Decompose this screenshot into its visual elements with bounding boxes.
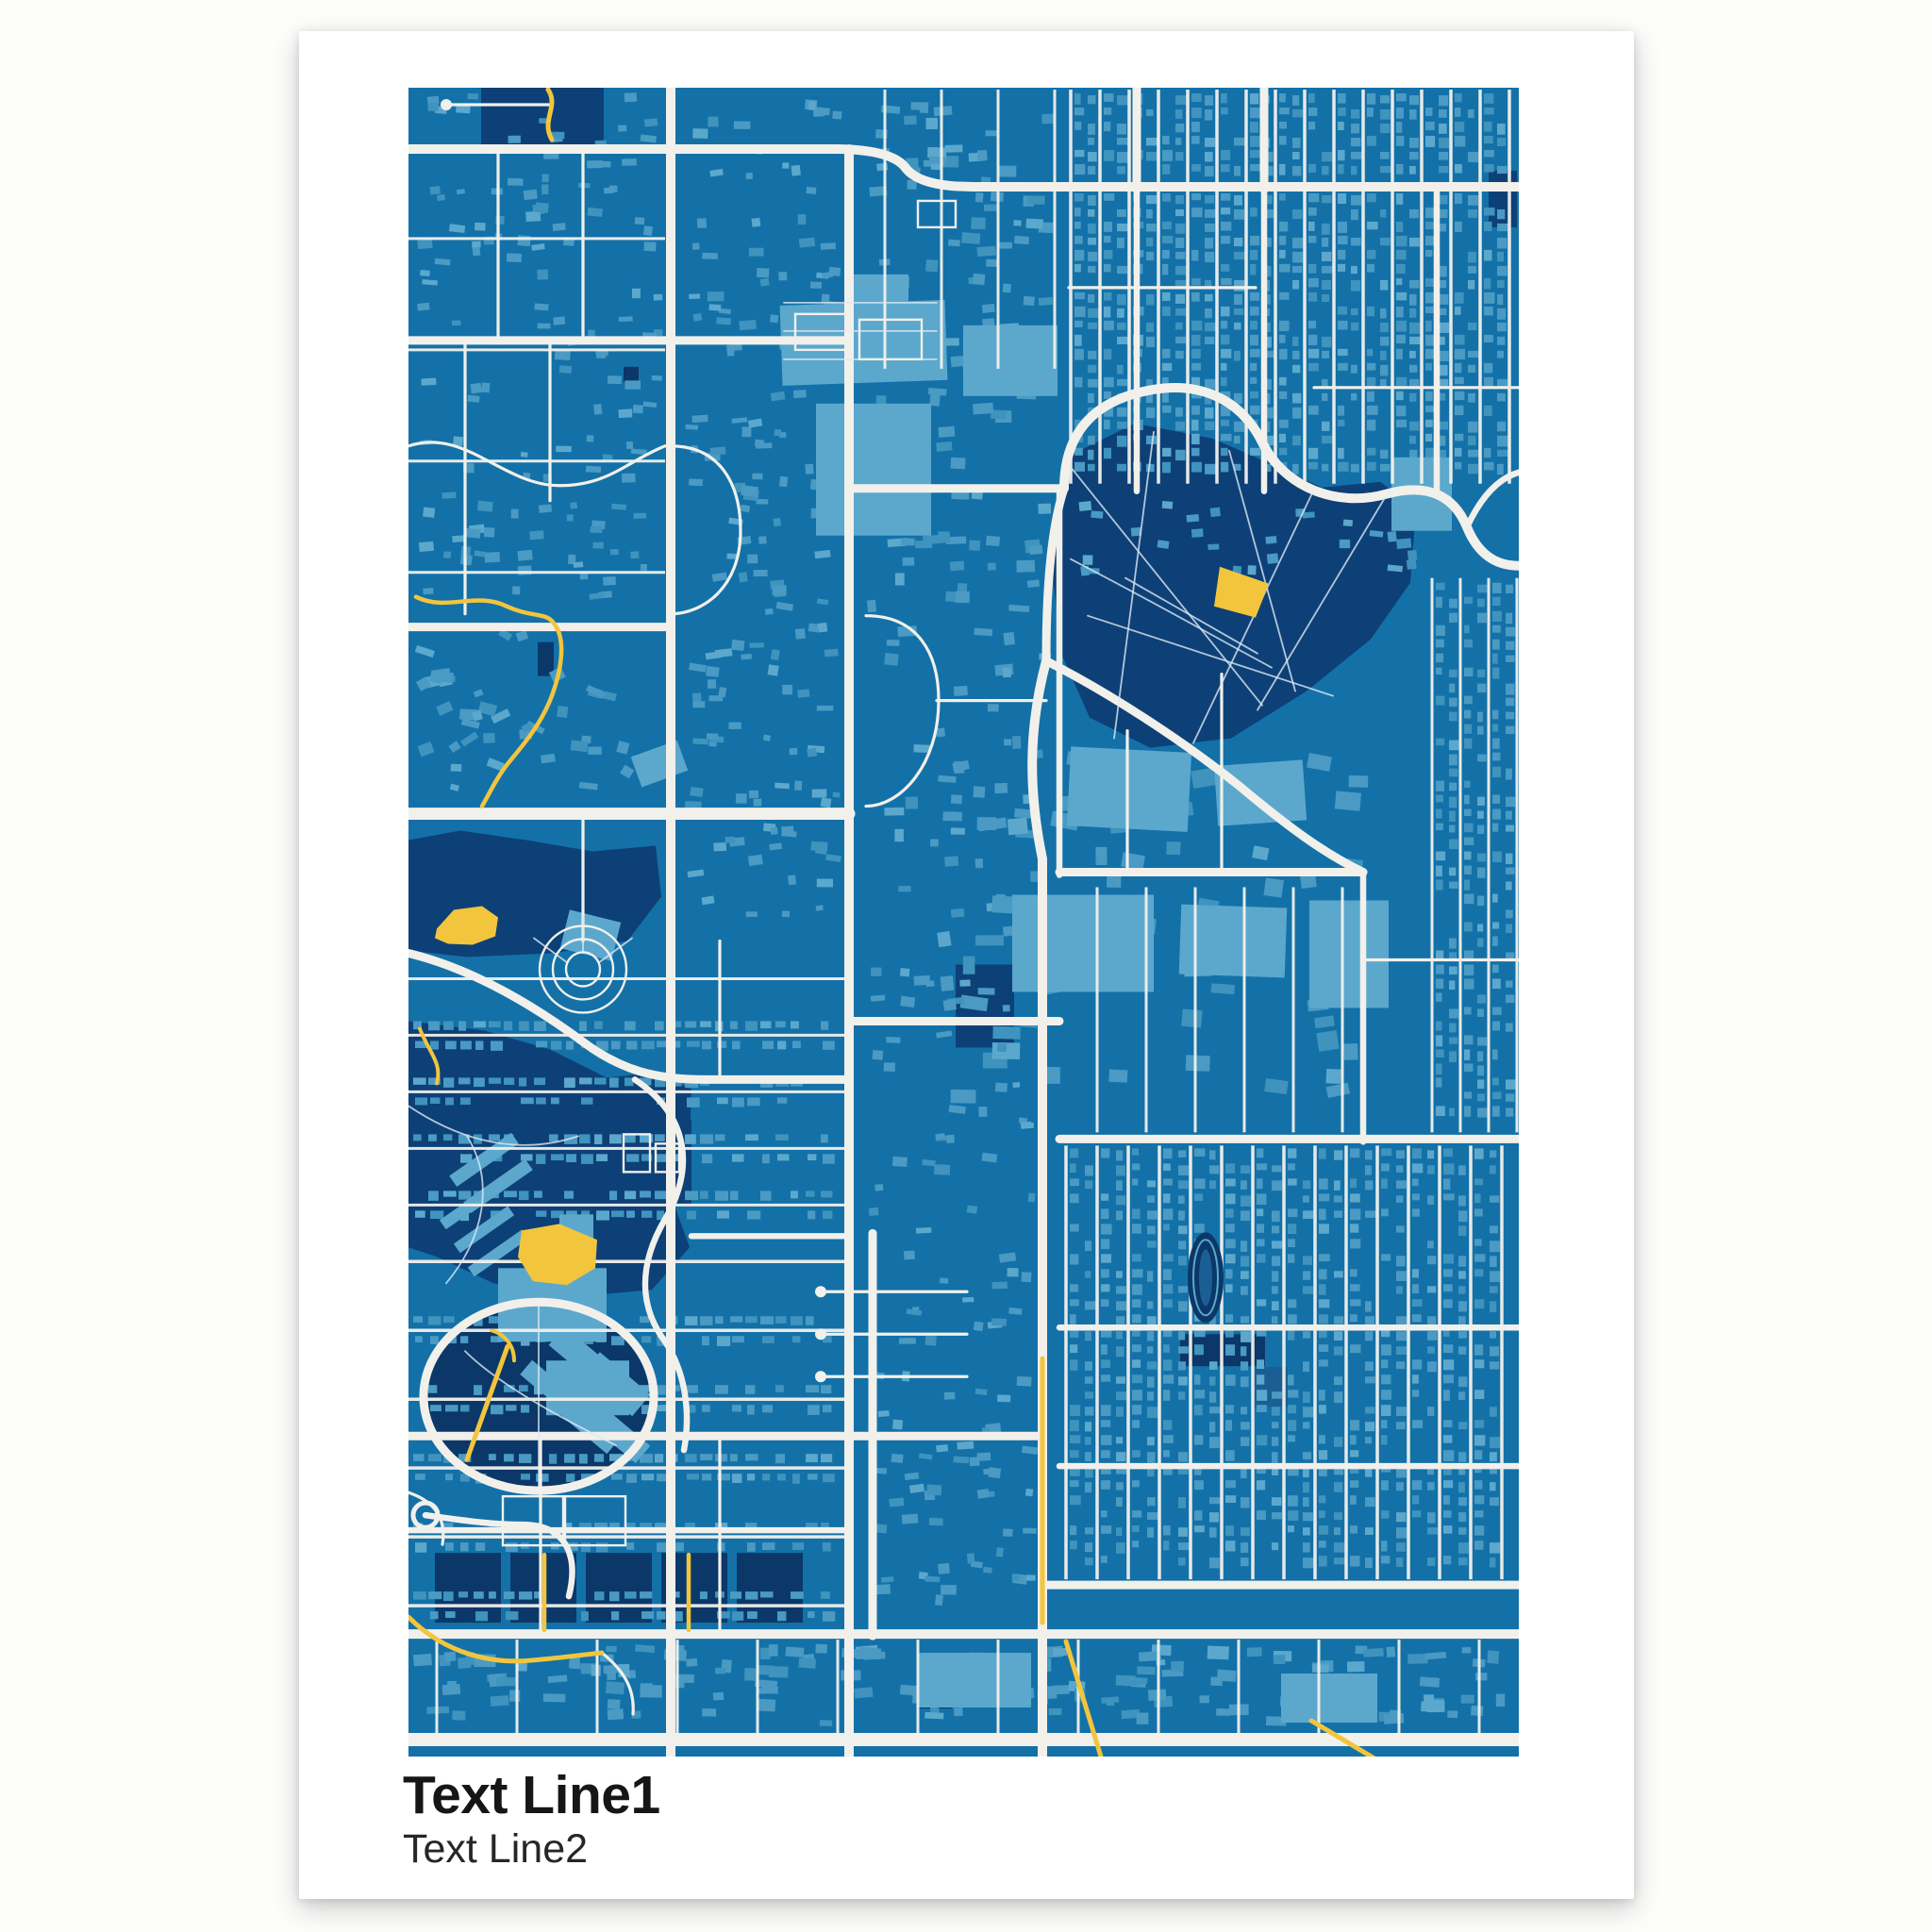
page-background: Text Line1 Text Line2 [0,0,1932,1932]
caption-line2: Text Line2 [403,1825,660,1873]
poster-caption: Text Line1 Text Line2 [403,1767,660,1873]
city-map [408,88,1519,1757]
map-poster: Text Line1 Text Line2 [299,31,1634,1899]
caption-line1: Text Line1 [403,1767,660,1824]
